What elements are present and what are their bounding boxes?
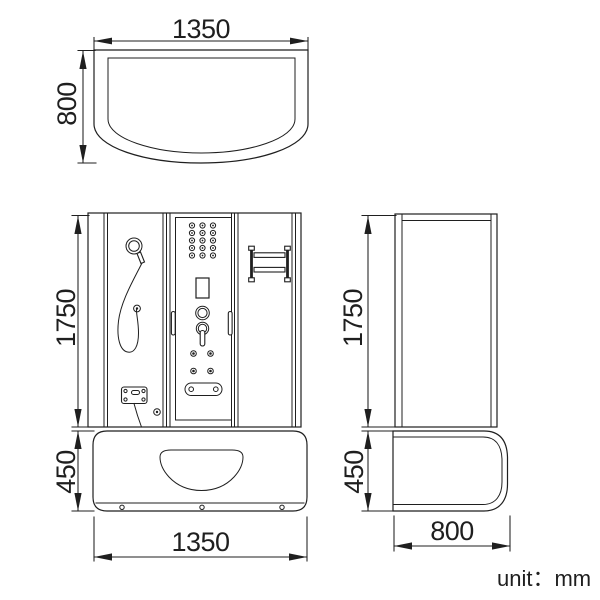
dimension-top-width: 1350 xyxy=(94,14,308,50)
valve-icon xyxy=(154,409,161,416)
arrow-down-icon xyxy=(364,493,371,511)
tub-apron-side xyxy=(393,431,508,511)
side-view xyxy=(393,214,508,511)
supply-cable xyxy=(134,404,142,428)
body-jets xyxy=(189,223,215,258)
mixer-lever xyxy=(196,322,208,346)
door-handle-right xyxy=(228,312,232,336)
arrow-right-icon xyxy=(289,553,307,560)
arrow-up-icon xyxy=(364,216,371,234)
tub-apron-front xyxy=(93,431,307,511)
display-screen xyxy=(196,278,209,298)
arrow-right-icon xyxy=(290,38,308,45)
apron-handle-recess xyxy=(160,450,243,491)
shower-hose xyxy=(118,263,142,352)
dimension-front-width: 1350 xyxy=(94,517,307,561)
control-box-plate xyxy=(122,387,148,427)
steam-knob xyxy=(196,306,210,320)
top-view xyxy=(94,50,308,163)
arrow-left-icon xyxy=(94,38,112,45)
arrow-right-icon xyxy=(492,542,510,549)
arrow-up-icon xyxy=(74,431,81,449)
dim-label-side-height: 1750 xyxy=(338,289,368,347)
foot-massage-plate xyxy=(185,383,222,396)
front-view xyxy=(88,213,307,511)
dim-label-front-height: 1750 xyxy=(51,289,81,347)
arrow-up-icon xyxy=(79,51,86,69)
technical-drawing-canvas: 1350 800 xyxy=(0,0,600,600)
hand-shower-icon xyxy=(118,238,145,352)
arrow-down-icon xyxy=(74,409,81,427)
arrow-up-icon xyxy=(74,216,81,234)
tray-inner-outline xyxy=(108,58,295,153)
arrow-left-icon xyxy=(94,553,112,560)
dimension-side-depth: 800 xyxy=(394,516,510,551)
towel-rack xyxy=(249,246,291,282)
dim-label-front-width: 1350 xyxy=(171,527,229,557)
arrow-left-icon xyxy=(394,542,412,549)
dimension-top-depth: 800 xyxy=(52,51,96,164)
tray-outer-outline xyxy=(94,50,308,163)
arrow-up-icon xyxy=(364,431,371,449)
dim-label-side-depth: 800 xyxy=(430,516,474,546)
arrow-down-icon xyxy=(74,493,81,511)
dimension-front-base-height: 450 xyxy=(51,431,94,511)
dimension-front-height: 1750 xyxy=(51,216,89,428)
dim-label-top-depth: 800 xyxy=(52,82,82,126)
dimension-side-base-height: 450 xyxy=(339,431,393,511)
unit-note: unit：mm xyxy=(497,566,591,591)
arrow-down-icon xyxy=(79,145,86,163)
control-panel xyxy=(176,218,232,421)
dimension-side-height: 1750 xyxy=(338,216,396,428)
arrow-down-icon xyxy=(364,409,371,427)
dim-label-top-width: 1350 xyxy=(172,14,230,44)
function-buttons xyxy=(191,351,214,374)
shower-cabin-drawing: 1350 800 xyxy=(0,0,600,600)
front-frame xyxy=(88,213,301,427)
side-frame xyxy=(395,214,497,427)
adjustable-feet xyxy=(120,505,284,509)
dim-label-side-base-height: 450 xyxy=(339,450,369,494)
door-handle-left xyxy=(171,312,175,336)
dim-label-front-base-height: 450 xyxy=(51,450,81,494)
